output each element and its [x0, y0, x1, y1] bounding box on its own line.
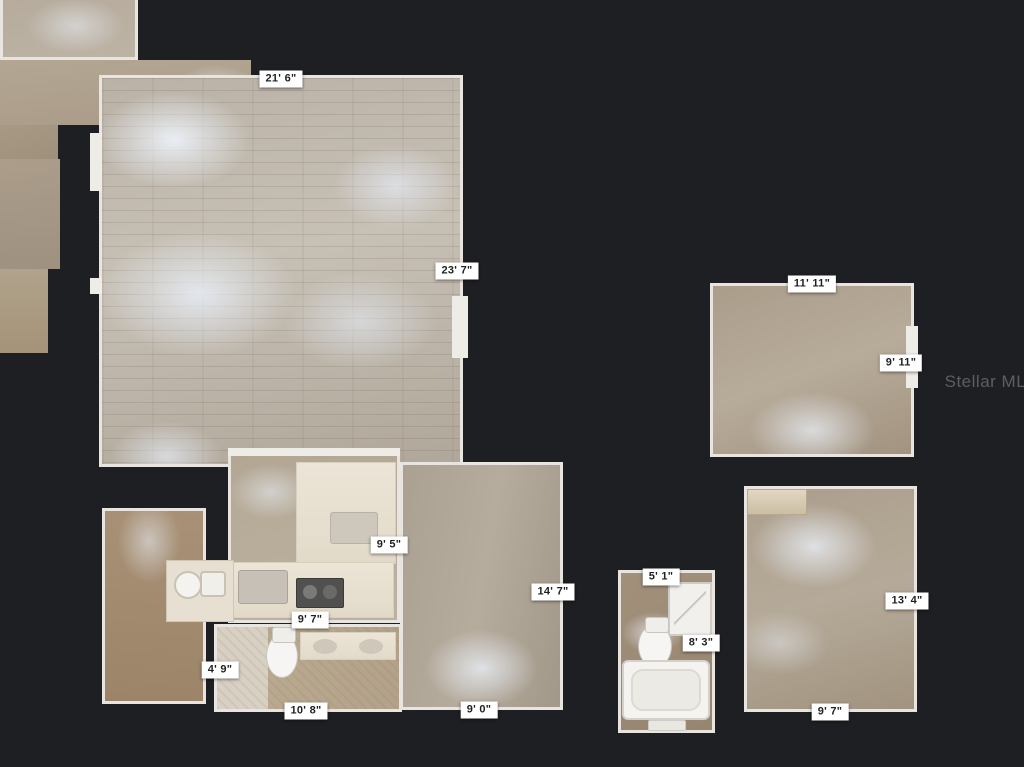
- dimension-label-bedroom-right-depth: 13' 4": [885, 593, 928, 610]
- stove-icon: [296, 578, 344, 608]
- dimension-label-bedroom-right-width: 9' 7": [812, 704, 849, 721]
- laundry-appliances-icon: [166, 560, 234, 622]
- window-living-left-upper: [90, 133, 102, 191]
- dimension-label-bath-small-depth: 8' 3": [683, 635, 720, 652]
- wall-kitchen-top: [228, 448, 400, 456]
- room-hallway-mid: [0, 159, 60, 269]
- dimension-label-dining-depth: 9' 11": [880, 355, 922, 372]
- dimension-label-living-depth: 23' 7": [435, 263, 478, 280]
- closet-shelf-icon: [747, 489, 807, 515]
- dimension-label-bedroom-mid-width: 9' 0": [461, 702, 498, 719]
- window-living-right: [452, 296, 468, 358]
- shower-icon: [668, 582, 712, 636]
- room-living: [99, 75, 463, 467]
- window-living-left-lower: [90, 278, 102, 294]
- stellar-mls-watermark: Stellar MLS: [945, 372, 1024, 392]
- vanity-double-sink-icon: [300, 632, 396, 660]
- dimension-label-living-width: 21' 6": [259, 71, 302, 88]
- kitchen-sink-lower-icon: [238, 570, 288, 604]
- dimension-label-dining-width: 11' 11": [788, 276, 836, 293]
- dimension-label-bath-left-width: 10' 8": [284, 703, 327, 720]
- room-hallway-small: [0, 269, 48, 353]
- toilet-left-icon: [266, 634, 298, 678]
- dimension-label-kitchen-depth: 9' 5": [371, 537, 408, 554]
- dimension-label-kitchen-width: 9' 7": [292, 612, 329, 629]
- dimension-label-hall-width: 4' 9": [202, 662, 239, 679]
- room-living-extension: [0, 0, 138, 60]
- bathtub-icon: [622, 660, 710, 720]
- dimension-label-bath-small-width: 5' 1": [643, 569, 680, 586]
- dimension-label-bedroom-mid-depth: 14' 7": [531, 584, 574, 601]
- bathtub-step: [648, 720, 686, 731]
- floor-plan: 21' 6" 23' 7" 11' 11" 9' 11" 9' 5" 14' 7…: [0, 0, 1024, 767]
- room-dining-extension: [0, 125, 58, 159]
